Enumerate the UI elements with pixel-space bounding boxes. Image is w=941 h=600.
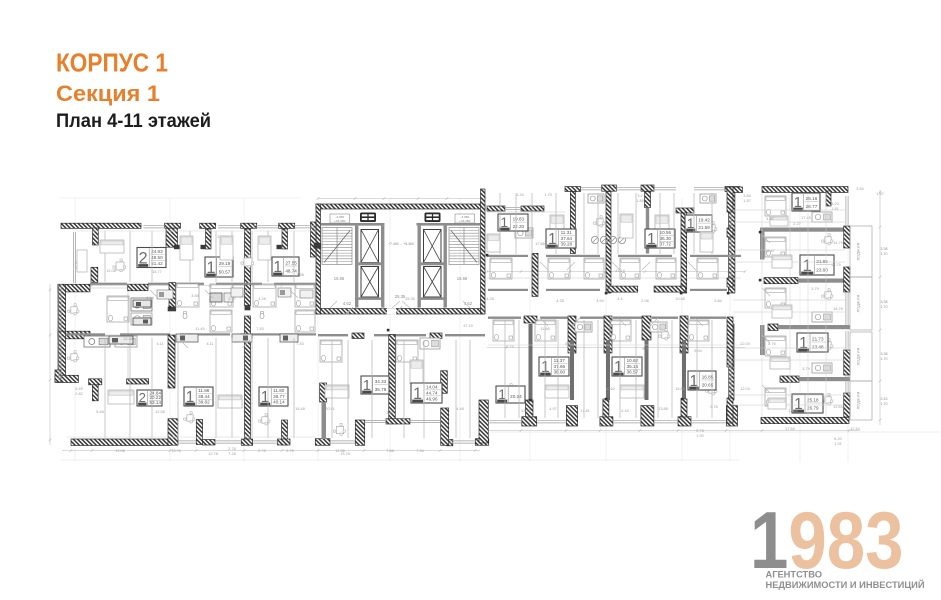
- svg-text:+7.460 ... +8.360: +7.460 ... +8.360: [388, 242, 414, 246]
- svg-text:ЛОДЖИЯ: ЛОДЖИЯ: [856, 391, 861, 409]
- svg-text:12.04: 12.04: [740, 387, 750, 391]
- svg-text:44.74: 44.74: [426, 390, 438, 395]
- svg-text:2.27: 2.27: [793, 222, 800, 226]
- svg-text:4.28: 4.28: [556, 299, 563, 303]
- svg-text:4.28: 4.28: [486, 297, 493, 301]
- svg-text:ЛОДЖИЯ: ЛОДЖИЯ: [856, 242, 861, 260]
- svg-text:29.19: 29.19: [219, 261, 231, 266]
- svg-text:34.33: 34.33: [375, 379, 387, 384]
- svg-text:24.83: 24.83: [151, 249, 163, 254]
- svg-text:4.28: 4.28: [258, 297, 265, 301]
- svg-text:16.66: 16.66: [334, 276, 345, 281]
- svg-text:5.78: 5.78: [696, 429, 703, 433]
- svg-text:53.14: 53.14: [150, 400, 162, 405]
- svg-text:2.73: 2.73: [506, 345, 513, 349]
- svg-text:14.79: 14.79: [833, 241, 843, 245]
- svg-text:2.75: 2.75: [258, 449, 265, 453]
- svg-text:37.66: 37.66: [554, 364, 566, 369]
- svg-text:3.98: 3.98: [296, 273, 303, 277]
- svg-text:+33.450: +33.450: [459, 219, 471, 223]
- svg-text:2.82: 2.82: [75, 392, 82, 396]
- svg-text:10.62: 10.62: [627, 358, 639, 363]
- svg-text:12.78: 12.78: [208, 452, 218, 456]
- svg-text:7.83: 7.83: [296, 342, 303, 346]
- svg-text:1.70: 1.70: [881, 357, 888, 361]
- svg-text:23.48: 23.48: [812, 345, 824, 350]
- svg-text:16.78: 16.78: [833, 307, 843, 311]
- svg-text:17.45: 17.45: [801, 216, 811, 220]
- svg-text:11.86: 11.86: [198, 388, 210, 393]
- svg-text:36.57: 36.57: [627, 370, 639, 375]
- svg-text:13.88: 13.88: [521, 409, 531, 413]
- svg-text:8.3: 8.3: [642, 347, 647, 351]
- svg-text:5.48: 5.48: [96, 410, 103, 414]
- svg-text:25.18: 25.18: [807, 398, 819, 403]
- svg-text:1.91: 1.91: [834, 442, 841, 446]
- svg-text:3.79: 3.79: [811, 287, 818, 291]
- svg-text:1.81: 1.81: [831, 207, 838, 211]
- svg-text:12.87: 12.87: [765, 249, 775, 253]
- svg-text:2.43: 2.43: [881, 397, 888, 401]
- svg-text:12.08: 12.08: [106, 269, 116, 273]
- svg-text:7.83: 7.83: [256, 327, 263, 331]
- svg-text:40.14: 40.14: [273, 400, 285, 405]
- svg-text:1.70: 1.70: [881, 402, 888, 406]
- svg-text:35.16: 35.16: [627, 364, 639, 369]
- svg-text:13.78: 13.78: [340, 452, 350, 456]
- svg-text:12.08: 12.08: [115, 449, 125, 453]
- svg-text:16.66: 16.66: [457, 276, 468, 281]
- svg-text:НЕДВИЖИМОСТИ И ИНВЕСТИЦИЙ: НЕДВИЖИМОСТИ И ИНВЕСТИЦИЙ: [766, 579, 925, 590]
- svg-text:51.42: 51.42: [151, 261, 163, 266]
- svg-text:2.47: 2.47: [228, 297, 235, 301]
- svg-text:4.42: 4.42: [565, 342, 572, 346]
- svg-text:3.84: 3.84: [191, 294, 198, 298]
- svg-text:19.42: 19.42: [698, 218, 710, 223]
- svg-text:5.49: 5.49: [75, 387, 82, 391]
- svg-text:3.84: 3.84: [743, 194, 750, 198]
- svg-text:12.38: 12.38: [123, 337, 133, 341]
- svg-text:1.70: 1.70: [881, 252, 888, 256]
- svg-text:План 4-11 этажей: План 4-11 этажей: [56, 111, 211, 132]
- svg-text:3.79: 3.79: [802, 367, 809, 371]
- svg-text:8.94: 8.94: [146, 296, 153, 300]
- svg-text:26.77: 26.77: [806, 204, 818, 209]
- svg-text:11.80: 11.80: [273, 388, 285, 393]
- svg-text:9.04: 9.04: [694, 349, 701, 353]
- svg-text:4.4: 4.4: [617, 297, 622, 301]
- svg-text:+33.450: +33.450: [334, 219, 346, 223]
- svg-text:КОРПУС 1: КОРПУС 1: [56, 48, 168, 78]
- svg-text:2.87: 2.87: [386, 411, 393, 415]
- svg-text:25.35: 25.35: [405, 297, 415, 301]
- svg-text:12.04: 12.04: [740, 342, 750, 346]
- svg-text:2.08: 2.08: [641, 299, 648, 303]
- svg-text:27.55: 27.55: [285, 261, 297, 266]
- svg-text:11.31: 11.31: [561, 230, 573, 235]
- svg-text:7.28: 7.28: [228, 452, 235, 456]
- svg-text:4.11: 4.11: [206, 342, 213, 346]
- svg-text:8.20: 8.20: [834, 437, 841, 441]
- svg-text:10.58: 10.58: [675, 297, 685, 301]
- svg-text:46.96: 46.96: [426, 396, 438, 401]
- svg-text:3.94: 3.94: [596, 299, 603, 303]
- svg-text:15.88: 15.88: [675, 387, 685, 391]
- svg-text:2.78: 2.78: [228, 447, 235, 451]
- svg-text:АГЕНТСТВО: АГЕНТСТВО: [766, 570, 822, 580]
- svg-text:3.20: 3.20: [831, 202, 838, 206]
- svg-text:1.90: 1.90: [696, 434, 703, 438]
- svg-text:3.2: 3.2: [637, 194, 642, 198]
- svg-text:35.78: 35.78: [375, 387, 387, 392]
- svg-text:17.88: 17.88: [535, 242, 545, 246]
- svg-text:12.44: 12.44: [850, 427, 860, 431]
- svg-text:4.48: 4.48: [456, 407, 463, 411]
- svg-text:ЛОДЖИЯ: ЛОДЖИЯ: [856, 294, 861, 312]
- svg-text:3.84: 3.84: [856, 187, 863, 191]
- svg-text:37.72: 37.72: [660, 242, 672, 247]
- svg-text:39.28: 39.28: [561, 242, 573, 247]
- svg-text:4.87: 4.87: [766, 217, 773, 221]
- svg-text:20.51: 20.51: [325, 407, 335, 411]
- svg-text:13.88: 13.88: [658, 407, 668, 411]
- svg-text:19.83: 19.83: [513, 217, 525, 222]
- svg-text:7.34: 7.34: [416, 449, 423, 453]
- svg-text:26.79: 26.79: [807, 406, 819, 411]
- svg-text:2.75: 2.75: [286, 449, 293, 453]
- svg-text:1.34: 1.34: [516, 193, 523, 197]
- svg-text:1.79: 1.79: [544, 193, 551, 197]
- svg-text:21.85: 21.85: [816, 259, 828, 264]
- svg-text:48.50: 48.50: [151, 255, 163, 260]
- svg-text:11.37: 11.37: [554, 358, 566, 363]
- svg-text:38.77: 38.77: [273, 394, 285, 399]
- svg-text:22.20: 22.20: [513, 224, 525, 229]
- svg-text:18.48: 18.48: [295, 407, 305, 411]
- svg-text:12.64: 12.64: [833, 405, 843, 409]
- svg-text:7.88: 7.88: [386, 449, 393, 453]
- svg-text:1.57: 1.57: [743, 199, 750, 203]
- svg-text:21.73: 21.73: [812, 337, 824, 342]
- svg-text:14.04: 14.04: [426, 384, 438, 389]
- svg-text:10.62: 10.62: [605, 387, 615, 391]
- svg-text:21.59: 21.59: [698, 225, 710, 230]
- svg-text:4.97: 4.97: [549, 407, 556, 411]
- svg-text:4.11: 4.11: [156, 342, 163, 346]
- svg-text:17.64: 17.64: [785, 427, 795, 431]
- svg-text:3.38: 3.38: [881, 247, 888, 251]
- svg-text:38.44: 38.44: [198, 394, 210, 399]
- svg-text:1.57: 1.57: [876, 192, 883, 196]
- svg-text:3.38: 3.38: [881, 352, 888, 356]
- svg-text:20.24: 20.24: [510, 394, 522, 399]
- svg-text:1.70: 1.70: [881, 305, 888, 309]
- svg-text:Секция 1: Секция 1: [56, 81, 160, 106]
- svg-text:2.43: 2.43: [621, 409, 628, 413]
- svg-text:13.78: 13.78: [171, 449, 181, 453]
- svg-text:1.85: 1.85: [636, 199, 643, 203]
- svg-text:36.30: 36.30: [660, 236, 672, 241]
- svg-text:4.62: 4.62: [343, 301, 352, 306]
- svg-text:38.60: 38.60: [554, 370, 566, 375]
- svg-text:3.84: 3.84: [714, 299, 721, 303]
- svg-text:47.19: 47.19: [463, 324, 473, 328]
- svg-text:17.64: 17.64: [788, 409, 798, 413]
- svg-text:14.79: 14.79: [831, 263, 841, 267]
- svg-text:5.78: 5.78: [710, 405, 717, 409]
- svg-text:37.64: 37.64: [561, 236, 573, 241]
- svg-text:17.81: 17.81: [580, 409, 590, 413]
- svg-text:12.58: 12.58: [155, 410, 165, 414]
- svg-text:10.56: 10.56: [660, 230, 672, 235]
- svg-text:25.35: 25.35: [395, 294, 406, 299]
- svg-text:ЛОДЖИЯ: ЛОДЖИЯ: [856, 347, 861, 365]
- svg-text:50.57: 50.57: [219, 270, 231, 275]
- svg-text:3.38: 3.38: [881, 300, 888, 304]
- svg-text:23.60: 23.60: [816, 268, 828, 273]
- svg-text:25.16: 25.16: [806, 196, 818, 201]
- svg-text:18.77: 18.77: [152, 270, 162, 274]
- svg-text:39.82: 39.82: [198, 400, 210, 405]
- svg-text:11.45: 11.45: [195, 327, 204, 331]
